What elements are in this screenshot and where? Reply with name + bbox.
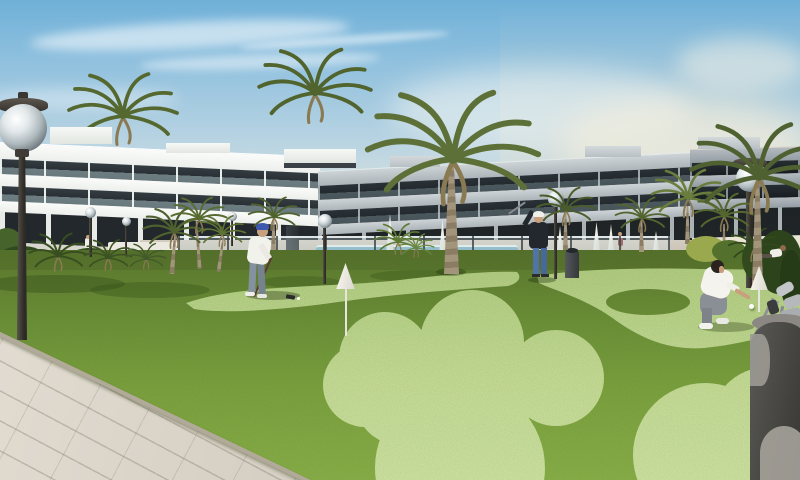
fan-palm-bush (26, 232, 90, 280)
golfer-blue-cap (256, 223, 269, 230)
swing-player-shoe (532, 274, 540, 277)
tall-palm-right (684, 120, 800, 234)
fan-palm-bush (124, 242, 168, 276)
swing-player-leg (533, 248, 539, 274)
garden-lamp-globe (318, 214, 332, 228)
person-shadow (528, 277, 556, 283)
pennant-pole (345, 286, 347, 336)
lamp-post-left-globe (0, 104, 47, 152)
golf-bag-trim (750, 334, 770, 386)
swing-player-white-cap (533, 211, 544, 217)
croucher-face (719, 266, 724, 273)
garden-lamp-globe (85, 207, 96, 218)
golfer-shoe (245, 292, 255, 296)
small-palm (246, 196, 302, 238)
golf-ball (749, 304, 754, 309)
croucher-sneaker (716, 318, 729, 324)
croucher-sneaker (699, 323, 713, 329)
waste-bollard (565, 250, 579, 278)
swing-player-leg (541, 248, 547, 274)
swing-player-torso (529, 222, 548, 249)
golf-bag-pocket (760, 426, 800, 480)
scene-apartment-putting-green (0, 0, 800, 480)
swing-player-shoe (541, 274, 549, 277)
pennant-pole (758, 288, 760, 312)
lamp-post-left-collar (15, 149, 29, 157)
tall-palm-center (358, 88, 548, 230)
seated-resident-head (780, 245, 786, 251)
small-palm (196, 214, 248, 254)
golf-ball (297, 297, 300, 300)
golfer-shoe (257, 294, 267, 298)
garden-lamp-globe (122, 217, 131, 226)
garden-lamp-pole (323, 228, 326, 284)
tropical-plant (396, 232, 436, 264)
